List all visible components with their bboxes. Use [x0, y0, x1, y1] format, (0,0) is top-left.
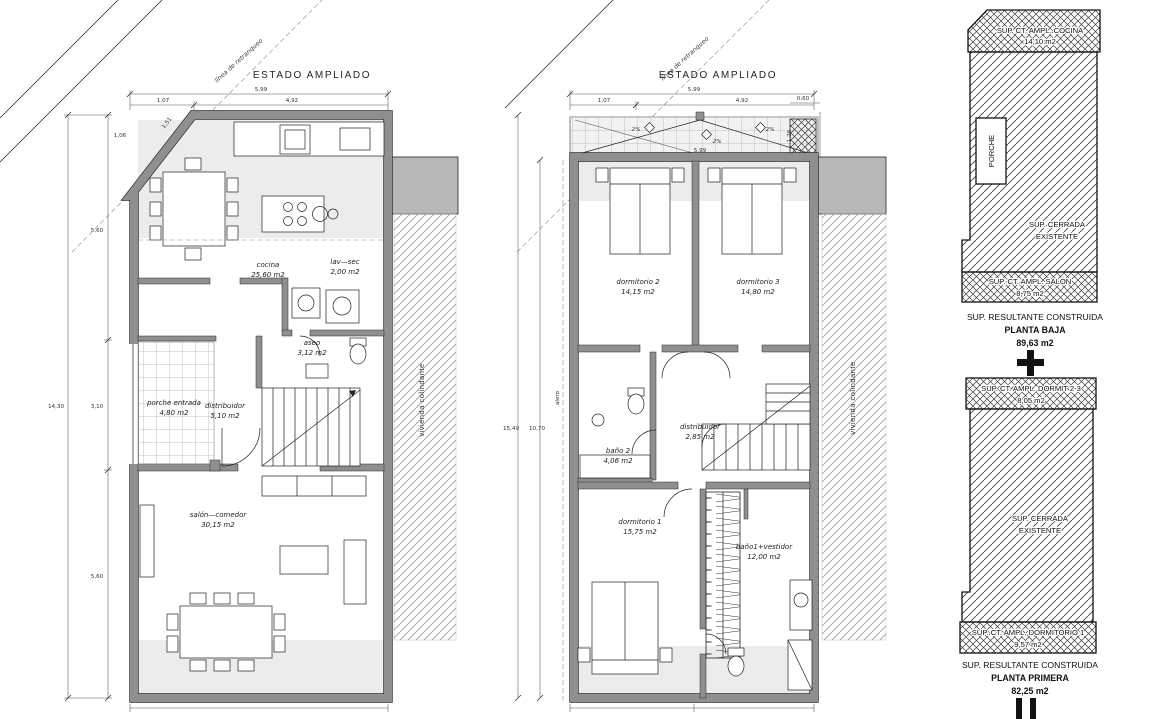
plan-baja: línea de retranqueo ESTADO AMPLIADO vivi…	[0, 0, 458, 712]
room-area-dorm2: 14,15 m2	[621, 288, 655, 296]
room-area-lavsec: 2,00 m2	[330, 268, 360, 276]
plan-primera-title: ESTADO AMPLIADO	[659, 70, 777, 81]
room-label-dorm1: dormitorio 1	[618, 518, 661, 526]
summary-baja-result-label: SUP. RESULTANTE CONSTRUIDA	[967, 312, 1103, 322]
plan-primera: línea de retranqueo ESTADO AMPLIADO vivi…	[503, 0, 886, 712]
room-area-bano2: 4,06 m2	[603, 457, 633, 465]
dim-baja-v-c: 5,60	[91, 574, 104, 580]
dim-prim-right-a: 0,60	[797, 96, 810, 102]
room-label-bano1: baño1+vestidor	[736, 543, 793, 551]
plan-baja-title: ESTADO AMPLIADO	[253, 70, 371, 81]
room-label-distribuidor: distribuidor	[205, 402, 246, 410]
drawing-canvas: línea de retranqueo ESTADO AMPLIADO vivi…	[0, 0, 1162, 719]
room-label-distribuidor2: distribuidor	[680, 423, 721, 431]
neighbor-building-mass-primera	[818, 157, 886, 214]
room-label-cocina: cocina	[257, 261, 280, 269]
summary-dorm1-label: SUP. CT. AMPL. DORMITORIO 1	[972, 628, 1084, 637]
neighbor-label-baja: vivienda colindante	[417, 363, 426, 436]
room-label-porche: porche entrada	[146, 399, 201, 407]
room-label-aseo: aseo	[304, 339, 321, 347]
room-label-bano2: baño 2	[606, 447, 631, 455]
summary-dormit23-label: SUP. CT. AMPL. DORMIT 2-3	[981, 384, 1081, 393]
dim-prim-top-total: 5,99	[688, 87, 701, 93]
room-area-cocina: 25,60 m2	[251, 271, 285, 279]
entry-door-arc	[222, 428, 260, 466]
summary-dormit23-area: 8,05 m2	[1017, 396, 1044, 405]
summary-existing-prim-1: SUP. CERRADA	[1012, 514, 1069, 523]
summary-prim-result-label: SUP. RESULTANTE CONSTRUIDA	[962, 660, 1098, 670]
summary-prim-result-area: 82,25 m2	[1011, 686, 1048, 696]
stairs-baja	[262, 388, 360, 466]
room-label-dorm3: dormitorio 3	[736, 278, 779, 286]
neighbor-label-primera: vivienda colindante	[848, 361, 857, 434]
summary-salon-area: 8,75 m2	[1016, 289, 1043, 298]
summary-existing-baja-1: SUP. CERRADA	[1029, 220, 1086, 229]
slope-label-1: 2%	[632, 127, 641, 133]
dim-prim-v-inner: 10,70	[529, 426, 545, 432]
summary-cocina-label: SUP. CT. AMPL. COCINA	[997, 26, 1084, 35]
dim-baja-v-top: 1,06	[114, 133, 127, 139]
neighbor-building-mass-baja	[392, 157, 458, 214]
skylight	[790, 119, 816, 155]
plus-sign	[1017, 350, 1044, 376]
summary-existing-baja-2: EXISTENTE	[1036, 232, 1078, 241]
room-area-salon: 30,15 m2	[201, 521, 235, 529]
room-area-distribuidor2: 2,85 m2	[685, 433, 715, 441]
summary-planta-primera: SUP. CT. AMPL. DORMIT 2-3 8,05 m2 SUP. C…	[960, 378, 1098, 696]
floor-plan-drawing: línea de retranqueo ESTADO AMPLIADO vivi…	[0, 0, 1162, 719]
room-label-dorm2: dormitorio 2	[616, 278, 660, 286]
room-area-aseo: 3,12 m2	[297, 349, 327, 357]
bedroom-furniture	[578, 168, 796, 674]
room-area-porche: 4,80 m2	[159, 409, 189, 417]
laundry-appliances	[292, 288, 359, 323]
dim-prim-top-a: 1,07	[598, 98, 611, 104]
dim-baja-v-a: 5,60	[91, 228, 104, 234]
dim-baja-v-total: 14,30	[48, 404, 64, 410]
dim-baja-top-total: 5,99	[255, 87, 268, 93]
summary-prim-result-name: PLANTA PRIMERA	[991, 673, 1069, 683]
summary-porche-label: PORCHE	[987, 135, 996, 168]
summary-planta-baja: SUP. CT. AMPL. COCINA 14,10 m2 PORCHE SU…	[962, 10, 1103, 348]
room-area-dorm1: 15,75 m2	[623, 528, 657, 536]
dim-baja-v-b: 3,10	[91, 404, 104, 410]
room-area-bano1: 12,00 m2	[747, 553, 781, 561]
dim-baja-top-a: 1,07	[157, 98, 170, 104]
room-area-dorm3: 14,80 m2	[741, 288, 775, 296]
summary-baja-result-area: 89,63 m2	[1016, 338, 1053, 348]
dim-baja-top-b: 4,92	[286, 98, 298, 104]
slope-label-3: 2%	[766, 127, 775, 133]
summary-existing-prim-2: EXISTENTE	[1019, 526, 1061, 535]
summary-salon-label: SUP. CT. AMPL. SALÓN	[989, 277, 1072, 286]
room-label-salon: salón—comedor	[190, 511, 248, 519]
summary-baja-result-name: PLANTA BAJA	[1004, 325, 1066, 335]
summary-cocina-area: 14,10 m2	[1024, 37, 1056, 46]
equals-sign	[1016, 698, 1036, 719]
dim-prim-right-b: 1,26	[787, 129, 793, 142]
dim-prim-top-b: 4,92	[736, 98, 748, 104]
slope-label-2: 2%	[713, 139, 722, 145]
alero-label: alero	[555, 390, 561, 405]
summary-dorm1-area: 9,57 m2	[1014, 640, 1041, 649]
room-area-distribuidor: 5,10 m2	[210, 412, 240, 420]
room-label-lavsec: lav—sec	[330, 258, 359, 266]
dim-prim-v-total: 15,49	[503, 426, 519, 432]
